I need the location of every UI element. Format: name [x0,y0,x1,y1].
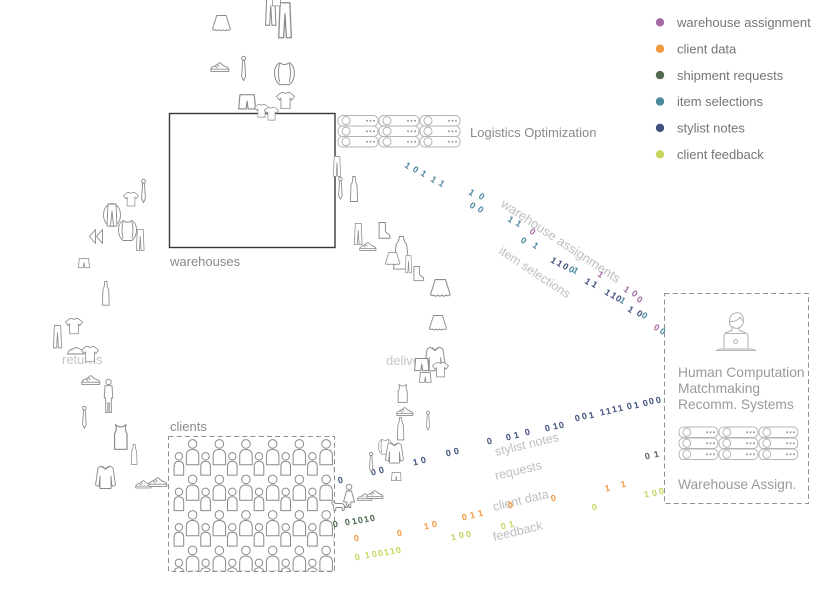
svg-text:warehouses: warehouses [169,254,241,269]
svg-text:Recomm. Systems: Recomm. Systems [678,397,794,412]
svg-text:Warehouse Assign.: Warehouse Assign. [678,477,796,492]
svg-text:shipment requests: shipment requests [677,68,784,83]
svg-text:Logistics Optimization: Logistics Optimization [470,125,596,140]
svg-text:Matchmaking: Matchmaking [678,381,760,396]
svg-text:clients: clients [170,419,207,434]
svg-text:warehouse assignment: warehouse assignment [676,15,811,30]
svg-text:client feedback: client feedback [677,147,764,162]
svg-text:stylist notes: stylist notes [677,121,745,136]
svg-text:item selections: item selections [677,94,763,109]
svg-text:client data: client data [677,41,737,56]
svg-text:Human Computation: Human Computation [678,365,805,380]
